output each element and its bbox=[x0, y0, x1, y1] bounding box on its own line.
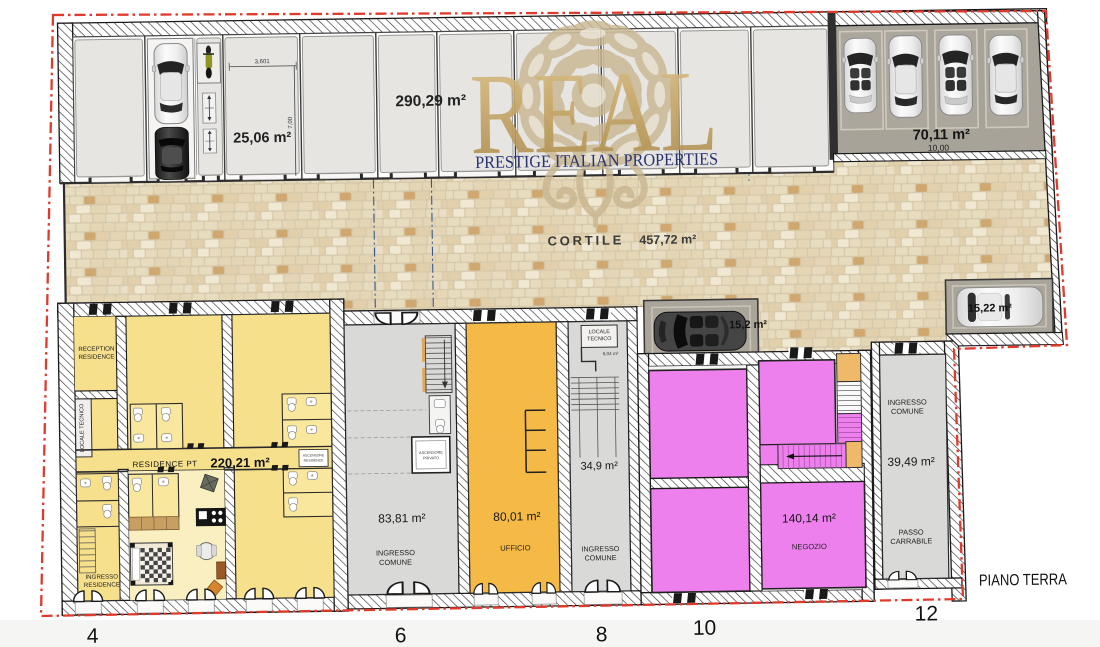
svg-text:CORTILE: CORTILE bbox=[547, 232, 624, 248]
svg-text:39,49 m²: 39,49 m² bbox=[887, 454, 935, 469]
svg-text:TECNICO: TECNICO bbox=[587, 336, 611, 342]
svg-text:3,601: 3,601 bbox=[255, 59, 271, 65]
svg-text:7,00: 7,00 bbox=[288, 116, 294, 128]
svg-text:25,06 m²: 25,06 m² bbox=[233, 130, 291, 147]
svg-text:15,22 m²: 15,22 m² bbox=[968, 302, 1013, 315]
svg-text:457,72 m²: 457,72 m² bbox=[639, 232, 696, 247]
svg-text:PRESTIGE ITALIAN PROPERTIES: PRESTIGE ITALIAN PROPERTIES bbox=[475, 148, 718, 172]
svg-text:RECEPTION: RECEPTION bbox=[78, 345, 114, 353]
svg-text:RESIDENCE: RESIDENCE bbox=[84, 581, 120, 589]
svg-text:INGRESSO: INGRESSO bbox=[376, 548, 415, 558]
svg-text:ASCENSORE: ASCENSORE bbox=[303, 453, 325, 457]
svg-text:290,29 m²: 290,29 m² bbox=[395, 92, 466, 110]
svg-text:INGRESSO: INGRESSO bbox=[85, 573, 118, 580]
svg-text:LOCALE: LOCALE bbox=[589, 329, 611, 335]
svg-text:CARRABILE: CARRABILE bbox=[890, 536, 932, 546]
svg-text:NEGOZIO: NEGOZIO bbox=[792, 542, 827, 552]
svg-text:COMUNE: COMUNE bbox=[584, 553, 616, 562]
svg-text:6: 6 bbox=[395, 624, 407, 647]
svg-text:RESIDENCE: RESIDENCE bbox=[78, 353, 114, 361]
svg-text:80,01 m²: 80,01 m² bbox=[493, 509, 541, 524]
svg-text:PASSO: PASSO bbox=[899, 527, 924, 536]
svg-text:83,81 m²: 83,81 m² bbox=[378, 511, 426, 526]
svg-text:12: 12 bbox=[915, 602, 939, 625]
svg-text:15,2 m²: 15,2 m² bbox=[729, 319, 767, 332]
svg-text:220,21 m²: 220,21 m² bbox=[210, 455, 270, 471]
svg-text:4: 4 bbox=[87, 625, 99, 647]
svg-text:6,04 m²: 6,04 m² bbox=[603, 351, 619, 356]
svg-text:140,14 m²: 140,14 m² bbox=[782, 511, 836, 526]
svg-text:PIANO TERRA: PIANO TERRA bbox=[979, 571, 1068, 589]
svg-text:RESIDENCE: RESIDENCE bbox=[304, 458, 325, 462]
svg-text:COMUNE: COMUNE bbox=[891, 406, 924, 415]
svg-text:PRIVATO: PRIVATO bbox=[423, 456, 439, 460]
svg-text:ASCENSORE: ASCENSORE bbox=[419, 451, 443, 455]
svg-text:70,11 m²: 70,11 m² bbox=[913, 127, 971, 144]
svg-text:8: 8 bbox=[596, 623, 608, 646]
svg-text:10,00: 10,00 bbox=[928, 143, 950, 153]
svg-text:LOCALE TECNICO: LOCALE TECNICO bbox=[79, 403, 86, 452]
svg-text:UFFICIO: UFFICIO bbox=[500, 543, 531, 552]
svg-text:10: 10 bbox=[693, 617, 717, 640]
svg-text:34,9 m²: 34,9 m² bbox=[580, 460, 618, 473]
svg-text:RESIDENCE PT: RESIDENCE PT bbox=[132, 459, 197, 469]
svg-text:COMUNE: COMUNE bbox=[379, 558, 412, 567]
